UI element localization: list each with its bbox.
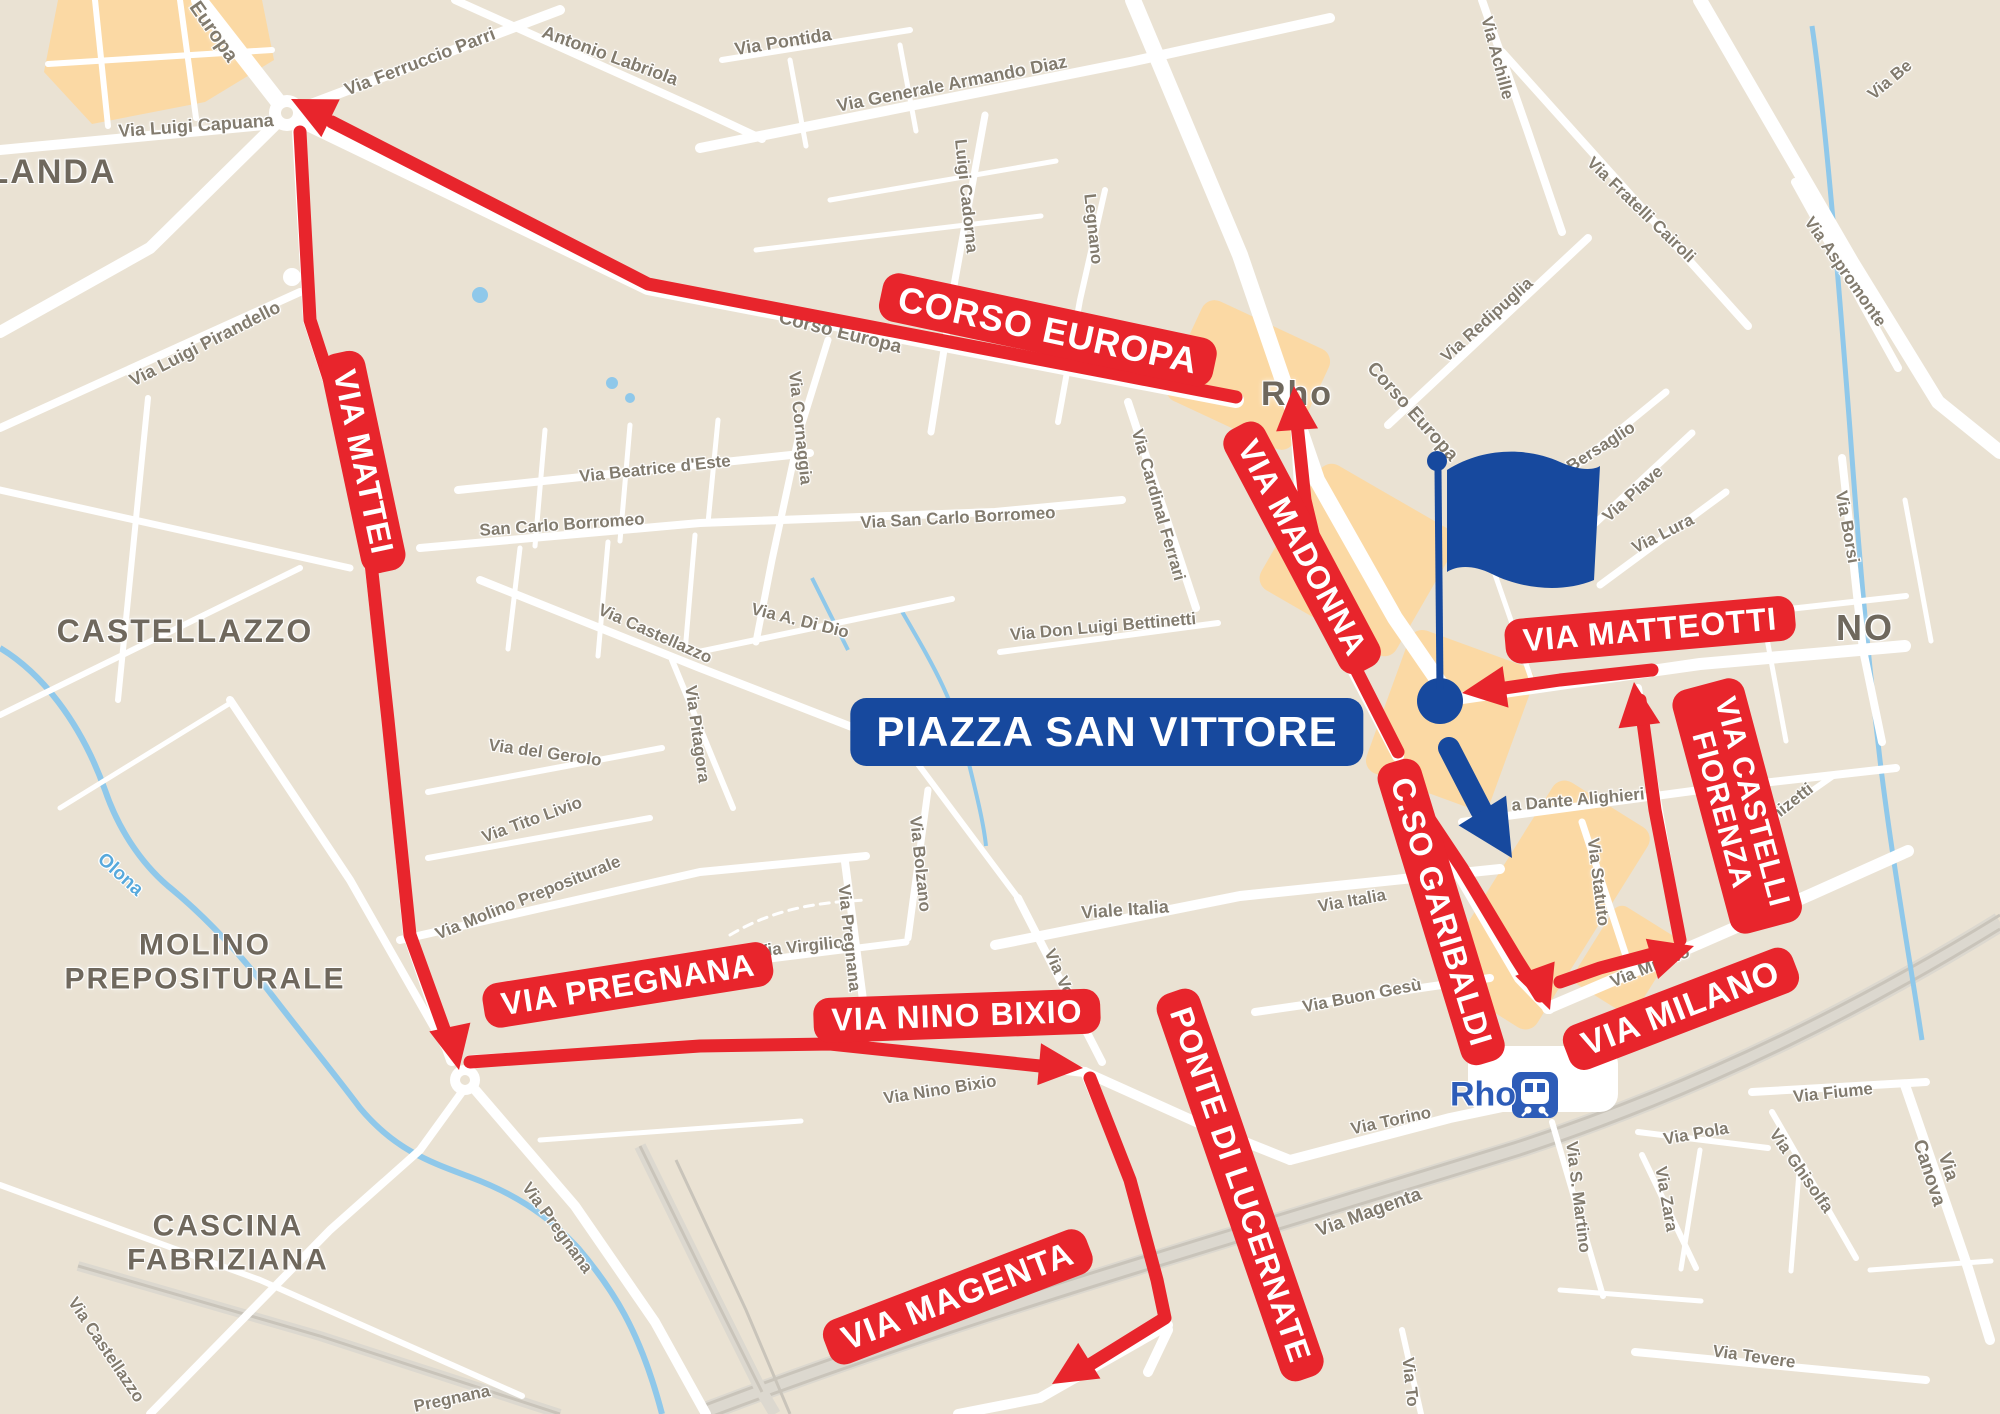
station-name: Rho	[1450, 1076, 1516, 1115]
route-street-label: VIA MAGENTA	[818, 1225, 1098, 1370]
route-street-label: C.SO GARIBALDI	[1373, 755, 1508, 1069]
route-street-label: VIA MATTEI	[318, 348, 409, 576]
piazza-san-vittore-label: PIAZZA SAN VITTORE	[850, 698, 1363, 766]
map-canvas: EuropaVia Ferruccio ParriAntonio Labriol…	[0, 0, 2000, 1414]
overlay-label-layer: CORSO EUROPAVIA MATTEIVIA MADONNAVIA MAT…	[0, 0, 2000, 1414]
route-street-label: VIA MILANO	[1558, 943, 1804, 1075]
route-street-label: VIA CASTELLI FIORENZA	[1668, 675, 1805, 938]
route-street-label: VIA PREGNANA	[480, 940, 776, 1030]
route-street-label: VIA NINO BIXIO	[813, 988, 1101, 1043]
route-street-label: CORSO EUROPA	[876, 270, 1220, 389]
route-street-label: VIA MADONNA	[1217, 416, 1386, 680]
route-street-label: VIA MATTEOTTI	[1503, 595, 1797, 665]
route-street-label: PONTE DI LUCERNATE	[1152, 984, 1328, 1385]
